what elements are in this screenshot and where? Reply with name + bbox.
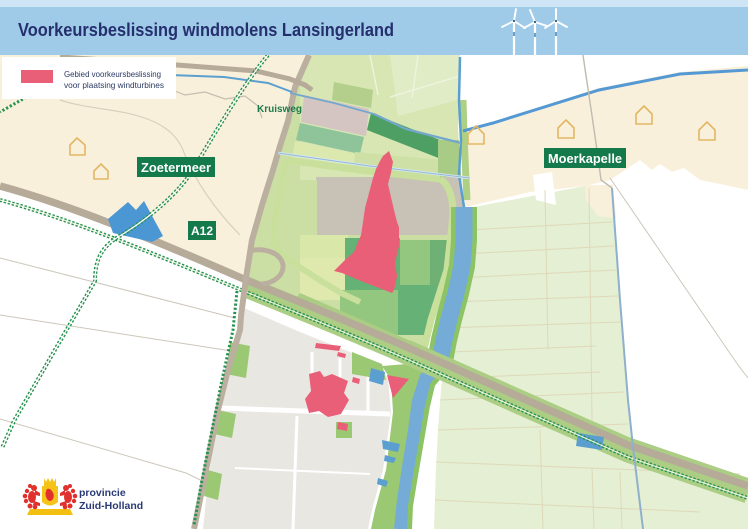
svg-text:provincie: provincie bbox=[79, 487, 126, 499]
svg-text:A12: A12 bbox=[191, 224, 213, 238]
svg-text:Voorkeursbeslissing windmolens: Voorkeursbeslissing windmolens Lansinger… bbox=[18, 20, 394, 40]
svg-text:Gebied voorkeursbeslissing: Gebied voorkeursbeslissing bbox=[64, 69, 161, 79]
svg-text:voor plaatsing windturbines: voor plaatsing windturbines bbox=[64, 80, 164, 90]
svg-text:Moerkapelle: Moerkapelle bbox=[548, 152, 622, 166]
svg-text:Kruisweg: Kruisweg bbox=[257, 104, 302, 115]
svg-text:Zoetermeer: Zoetermeer bbox=[141, 161, 211, 175]
svg-text:Zuid-Holland: Zuid-Holland bbox=[79, 500, 143, 512]
